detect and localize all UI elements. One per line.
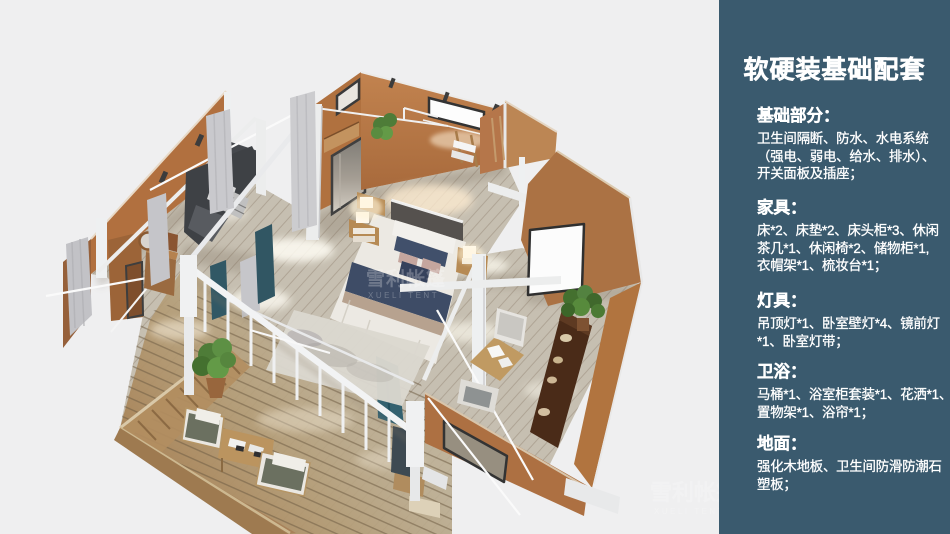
svg-text:XUELI TENT: XUELI TENT [654, 507, 725, 516]
svg-text:雪利帐篷: 雪利帐篷 [366, 267, 446, 290]
svg-text:XUELI TENT: XUELI TENT [368, 291, 439, 300]
